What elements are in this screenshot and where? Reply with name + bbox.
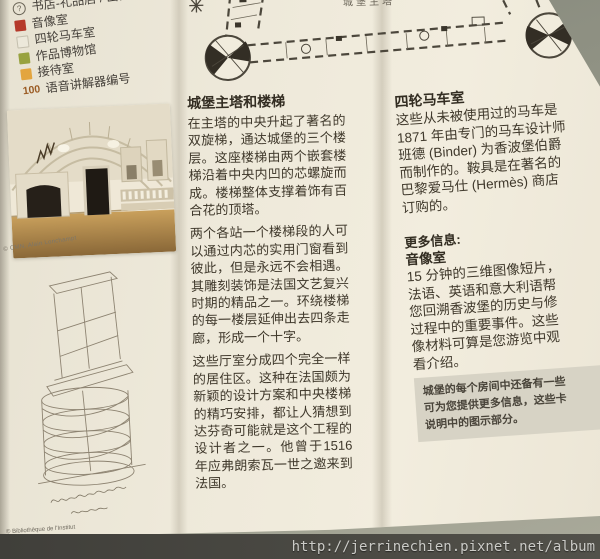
red-swatch-icon (14, 19, 26, 31)
interior-photo (7, 104, 176, 259)
floorplan-label: 城堡主塔 (343, 0, 396, 9)
article-keep-and-staircase: 城堡主塔和楼梯 在主塔的中央升起了著名的双旋梯，通达城堡的三个楼层。这座楼梯由两… (187, 92, 353, 499)
photo-of-brochure: ? 书店-礼品店 / 出口 音像室 四轮马车室 作品博物馆 接待室 100 (0, 0, 600, 559)
brochure-page: ? 书店-礼品店 / 出口 音像室 四轮马车室 作品博物馆 接待室 100 (0, 0, 600, 559)
legend-label: 音像室 (31, 13, 69, 30)
info-card-note: 城堡的每个房间中还备有一些 可为您提供更多信息，这些卡 说明中的图示部分。 (414, 363, 600, 442)
legend-label: 接待室 (37, 62, 75, 79)
page-left-shadow (0, 0, 10, 559)
watermark-url: http://jerrinechien.pixnet.net/album (292, 539, 595, 555)
article-paragraph: 在主塔的中央升起了著名的双旋梯，通达城堡的三个楼层。这座楼梯由两个嵌套楼梯沿着中… (187, 112, 347, 220)
watermark-bar: http://jerrinechien.pixnet.net/album (0, 534, 600, 559)
map-legend: ? 书店-礼品店 / 出口 音像室 四轮马车室 作品博物馆 接待室 100 (12, 0, 142, 101)
pale-swatch-icon (16, 35, 29, 48)
davinci-staircase-sketch (14, 264, 185, 530)
article-paragraph: 两个各站一个楼梯段的人可以通过内芯的实用门窗看到彼此，但是永远不会相遇。其雕刻装… (190, 222, 351, 347)
coach-room-paragraph: 这些从未被使用过的马车是 1871 年由专门的马车设计师 班德 (Binder)… (395, 96, 600, 217)
audio-guide-number: 100 (22, 83, 40, 98)
green-swatch-icon (18, 52, 30, 64)
mirror-handwriting (50, 487, 127, 515)
article-coach-room: 四轮马车室 这些从未被使用过的马车是 1871 年由专门的马车设计师 班德 (B… (394, 78, 600, 442)
question-circle-icon: ? (12, 1, 26, 15)
audio-room-paragraph: 15 分钟的三维图像短片， 法语、英语和意大利语帮 您回溯香波堡的历史与修 过程… (406, 252, 600, 373)
orange-swatch-icon (20, 68, 32, 80)
article-paragraph: 这些厅室分成四个完全一样的居住区。这种在法国颇为新颖的设计方案和中央楼梯的精巧安… (192, 350, 353, 493)
room-number-marker (301, 44, 310, 53)
north-mark-icon (189, 0, 203, 13)
room-number-marker (420, 31, 429, 40)
article-heading: 城堡主塔和楼梯 (187, 92, 345, 112)
